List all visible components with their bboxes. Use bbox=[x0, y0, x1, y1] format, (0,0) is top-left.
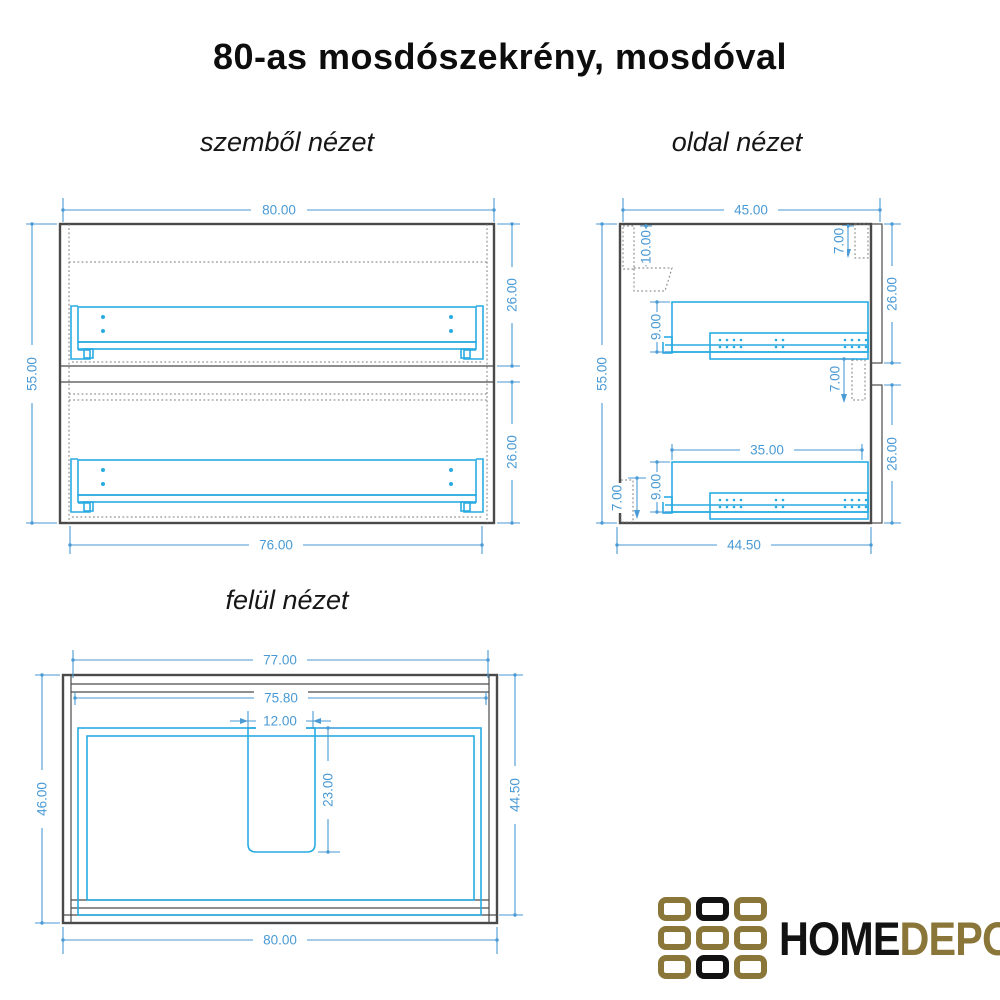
logo-grid-cell bbox=[658, 897, 691, 921]
top-dim-width-outer: 77.00 bbox=[263, 653, 297, 668]
side-view-drawing: 45.00 55.00 10.00 7.00 26.00 bbox=[595, 198, 901, 554]
logo-grid-cell bbox=[734, 955, 767, 979]
drawing-canvas: 80.00 55.00 26.00 26.00 76.00 bbox=[0, 0, 1000, 1000]
front-view-drawing: 80.00 55.00 26.00 26.00 76.00 bbox=[25, 198, 520, 554]
front-dim-width-top: 80.00 bbox=[262, 203, 296, 218]
logo-grid-cell bbox=[696, 897, 729, 921]
top-dim-depth-right: 44.50 bbox=[508, 778, 523, 812]
front-dim-drawer-lower: 26.00 bbox=[505, 435, 520, 469]
side-dim-back-rail: 10.00 bbox=[639, 230, 654, 264]
side-dim-depth-top: 45.00 bbox=[734, 203, 768, 218]
logo-grid-cell bbox=[696, 955, 729, 979]
side-dim-height-left: 55.00 bbox=[595, 357, 610, 391]
side-dim-depth-bottom: 44.50 bbox=[727, 538, 761, 553]
logo-grid-icon bbox=[658, 897, 767, 979]
technical-drawing-page: 80-as mosdószekrény, mosdóval szemből né… bbox=[0, 0, 1000, 1000]
logo-text-depo: DEPO bbox=[900, 912, 1000, 965]
top-dim-depth-left: 46.00 bbox=[35, 782, 50, 816]
top-dim-width-bottom: 80.00 bbox=[263, 933, 297, 948]
logo-text-home: HOME bbox=[779, 912, 900, 965]
side-dim-drawer-depth: 35.00 bbox=[750, 443, 784, 458]
homedepo-logo: HOMEDEPO bbox=[658, 897, 1000, 979]
side-dim-front-upper: 26.00 bbox=[885, 277, 900, 311]
front-dim-drawer-upper: 26.00 bbox=[505, 278, 520, 312]
side-dim-front-lower: 26.00 bbox=[885, 437, 900, 471]
logo-grid-cell bbox=[696, 926, 729, 950]
top-dim-cutout-width: 12.00 bbox=[263, 714, 297, 729]
logo-wordmark: HOMEDEPO bbox=[779, 915, 1000, 962]
side-dim-bracket-bottom: 7.00 bbox=[610, 485, 625, 511]
side-dim-rail-upper: 9.00 bbox=[649, 314, 664, 340]
side-dim-rail-lower: 9.00 bbox=[649, 474, 664, 500]
logo-grid-cell bbox=[734, 897, 767, 921]
front-dim-width-bottom: 76.00 bbox=[259, 538, 293, 553]
top-dim-cutout-depth: 23.00 bbox=[321, 773, 336, 807]
side-dim-bracket-top: 7.00 bbox=[832, 228, 847, 254]
logo-grid-cell bbox=[658, 926, 691, 950]
front-dim-height-left: 55.00 bbox=[25, 357, 40, 391]
side-dim-bracket-mid: 7.00 bbox=[828, 366, 843, 392]
logo-grid-cell bbox=[658, 955, 691, 979]
logo-grid-cell bbox=[734, 926, 767, 950]
top-view-drawing: 77.00 75.80 12.00 23.00 46.00 bbox=[35, 650, 523, 954]
top-dim-width-inner: 75.80 bbox=[264, 691, 298, 706]
